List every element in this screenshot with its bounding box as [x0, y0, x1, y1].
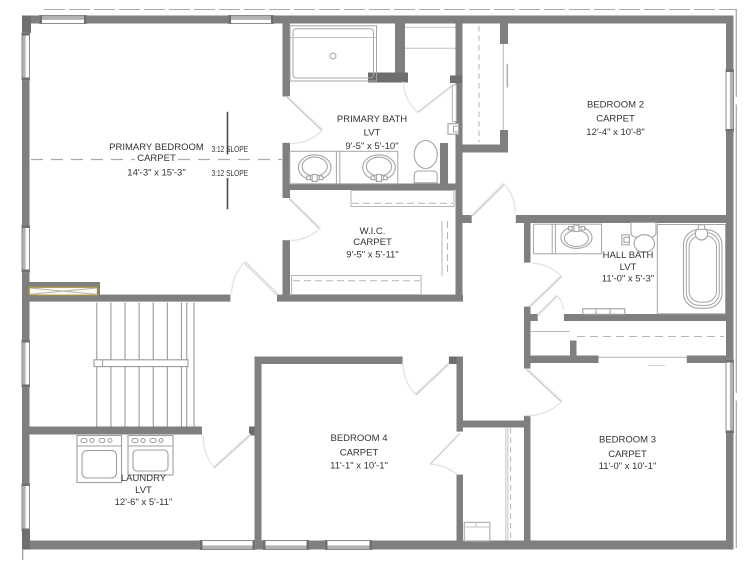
svg-text:BEDROOM 4: BEDROOM 4: [330, 433, 387, 444]
svg-text:11'-0" x 10'-1": 11'-0" x 10'-1": [599, 461, 657, 472]
svg-text:HALL BATH: HALL BATH: [603, 250, 654, 261]
svg-text:CARPET: CARPET: [340, 447, 379, 458]
svg-text:BEDROOM 2: BEDROOM 2: [587, 99, 644, 110]
svg-text:11'-1" x 10'-1": 11'-1" x 10'-1": [330, 460, 388, 471]
svg-text:LVT: LVT: [364, 128, 381, 139]
svg-text:BEDROOM 3: BEDROOM 3: [599, 434, 656, 445]
svg-text:PRIMARY BEDROOM: PRIMARY BEDROOM: [109, 142, 204, 153]
svg-text:9'-5" x 5'-10": 9'-5" x 5'-10": [345, 141, 398, 152]
svg-text:CARPET: CARPET: [137, 153, 176, 164]
svg-text:W.I.C.: W.I.C.: [360, 226, 386, 237]
svg-text:11'-0" x 5'-3": 11'-0" x 5'-3": [602, 274, 654, 285]
svg-text:3:12 SLOPE: 3:12 SLOPE: [212, 169, 249, 178]
svg-text:12'-6" x 5'-11": 12'-6" x 5'-11": [115, 497, 173, 508]
svg-text:CARPET: CARPET: [353, 237, 392, 248]
svg-text:PRIMARY BATH: PRIMARY BATH: [337, 114, 407, 125]
svg-text:LVT: LVT: [620, 262, 637, 273]
svg-text:14'-3" x 15'-3": 14'-3" x 15'-3": [127, 167, 185, 178]
svg-text:LVT: LVT: [135, 485, 152, 496]
svg-text:LAUNDRY: LAUNDRY: [121, 473, 167, 484]
svg-text:3:12 SLOPE: 3:12 SLOPE: [212, 145, 249, 154]
svg-text:12'-4" x 10'-8": 12'-4" x 10'-8": [586, 127, 644, 138]
svg-text:CARPET: CARPET: [596, 113, 635, 124]
svg-text:9'-5" x 5'-11": 9'-5" x 5'-11": [346, 250, 398, 261]
svg-text:CARPET: CARPET: [608, 449, 647, 460]
